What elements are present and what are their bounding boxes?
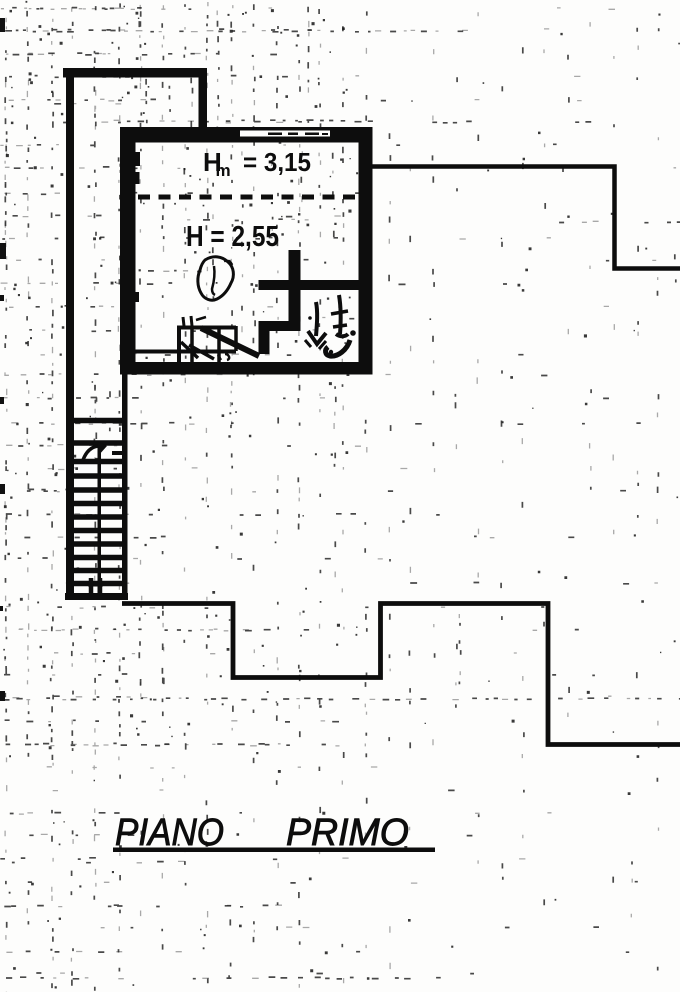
svg-text:= 3,15: = 3,15 <box>243 147 311 177</box>
svg-text:H = 2,55: H = 2,55 <box>186 221 279 253</box>
svg-text:m: m <box>216 161 231 180</box>
